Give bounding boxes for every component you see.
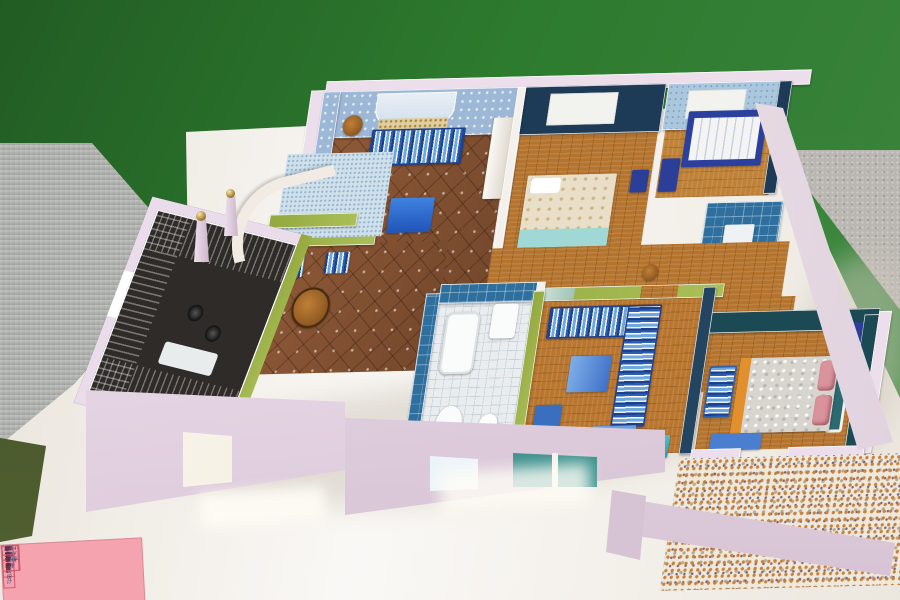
washbasin bbox=[489, 303, 520, 338]
main-bath-top-wall bbox=[438, 282, 541, 304]
pillar-finial-2 bbox=[226, 189, 235, 198]
label-card-table: 展览名称 毕业作品展 作 品 地中海家装设计 作 者 陈业、黄丽丽 年级专业 2… bbox=[1, 538, 144, 600]
photo-of-architectural-model: 展览名称 毕业作品展 作 品 地中海家装设计 作 者 陈业、黄丽丽 年级专业 2… bbox=[0, 0, 900, 600]
bedroom-bed-throw bbox=[517, 228, 609, 248]
apartment-model bbox=[262, 92, 900, 600]
corridor-mirror-2 bbox=[541, 288, 575, 301]
study-table bbox=[566, 355, 612, 392]
kids-crib bbox=[681, 110, 769, 168]
pillar-finial-1 bbox=[196, 211, 206, 221]
corridor-opening bbox=[640, 285, 679, 298]
card-row4-value: 丁 bbox=[1, 545, 13, 555]
bedroom-nightstand bbox=[629, 170, 649, 193]
exhibit-label-card: 展览名称 毕业作品展 作 品 地中海家装设计 作 者 陈业、黄丽丽 年级专业 2… bbox=[0, 537, 146, 600]
dining-chair-2 bbox=[323, 252, 350, 274]
coffee-table bbox=[386, 197, 435, 233]
bedroom-wall-panel bbox=[546, 92, 619, 125]
bedroom-pillow bbox=[529, 178, 561, 194]
